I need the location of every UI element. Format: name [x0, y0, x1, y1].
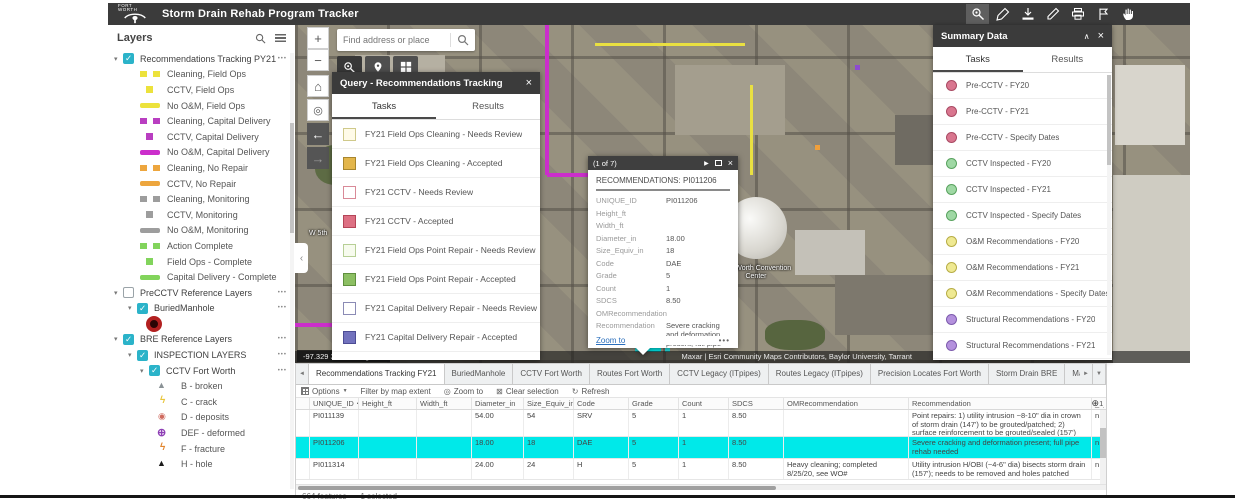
search-submit-icon[interactable] — [451, 34, 475, 46]
layer-item[interactable]: Cleaning, Monitoring — [108, 191, 295, 207]
maximize-icon[interactable] — [715, 160, 722, 166]
table-tab[interactable]: Precision Locates Fort Worth — [871, 364, 989, 384]
column-header[interactable]: Size_Equiv_in — [524, 398, 574, 409]
caret-down-icon[interactable] — [128, 304, 137, 312]
table-tab[interactable]: CCTV Legacy (ITpipes) — [670, 364, 769, 384]
query-task[interactable]: FY21 CCTV - Accepted — [332, 207, 540, 236]
layer-checkbox[interactable] — [137, 303, 148, 314]
layer-item[interactable]: B - broken — [108, 378, 295, 394]
summary-task[interactable]: Structural Recommendations - FY20 — [933, 307, 1112, 333]
layer-menu-icon[interactable] — [278, 56, 287, 62]
layer-label: Cleaning, Capital Delivery — [167, 116, 271, 126]
layer-item[interactable]: CCTV, Capital Delivery — [108, 129, 295, 145]
task-label: FY21 Field Ops Cleaning - Needs Review — [365, 129, 522, 139]
bookmark-tool-button[interactable] — [1091, 4, 1114, 24]
search-icon[interactable] — [255, 33, 266, 44]
cell-recommendation: Severe cracking and deformation present;… — [909, 437, 1092, 458]
summary-panel-header[interactable]: Summary Data ∧ × — [933, 25, 1112, 47]
field-value: 1 — [666, 284, 730, 293]
query-task[interactable]: FY21 Field Ops Cleaning - Needs Review — [332, 120, 540, 149]
tab-tasks[interactable]: Tasks — [933, 47, 1023, 72]
options-grid-icon — [301, 387, 309, 395]
table-tab[interactable]: BuriedManhole — [445, 364, 514, 384]
layer-item[interactable]: No O&M, Capital Delivery — [108, 145, 295, 161]
field-label: Size_Equiv_in — [596, 246, 666, 255]
cell-diameter-in: 54.00 — [472, 410, 524, 436]
field-label: Count — [596, 284, 666, 293]
summary-tabs: Tasks Results — [933, 47, 1112, 73]
cell-size-equiv-in: 24 — [524, 459, 574, 479]
logo-text: FORT WORTH — [118, 4, 152, 12]
cell-width-ft — [417, 410, 472, 436]
layer-item[interactable]: BuriedManhole — [108, 301, 295, 317]
legend-swatch — [140, 209, 160, 220]
column-header[interactable]: Height_ft — [359, 398, 417, 409]
cell-recommendation: Point repairs: 1) utility intrusion ~8-1… — [909, 410, 1092, 436]
next-extent-button[interactable]: → — [307, 147, 329, 169]
layer-label: CCTV Fort Worth — [166, 366, 235, 376]
attribute-table: ◄ Recommendations Tracking FY21 BuriedMa… — [295, 363, 1107, 496]
close-icon[interactable]: × — [1098, 30, 1104, 42]
legend-swatch — [140, 240, 160, 251]
summary-task[interactable]: CCTV Inspected - FY20 — [933, 151, 1112, 177]
field-label: SDCS — [596, 296, 666, 305]
layer-label: PreCCTV Reference Layers — [140, 288, 252, 298]
column-header[interactable]: Code — [574, 398, 629, 409]
query-panel-title: Query - Recommendations Tracking — [340, 78, 503, 89]
query-task[interactable]: FY21 Field Ops Cleaning - Accepted — [332, 149, 540, 178]
popup-fields: UNIQUE_ID PI011206 Height_ft Width_ft — [596, 196, 730, 348]
layers-scrollbar[interactable] — [290, 53, 294, 489]
task-swatch — [946, 158, 957, 169]
layer-label: No O&M, Field Ops — [167, 101, 245, 111]
cell-om-recommendation — [784, 437, 909, 458]
query-task[interactable]: FY21 Capital Delivery Repair - Accepted — [332, 323, 540, 352]
popup-field-row: UNIQUE_ID PI011206 — [596, 196, 730, 205]
layer-item[interactable]: F - fracture — [108, 441, 295, 457]
column-header[interactable]: Grade — [629, 398, 679, 409]
cell-code: H — [574, 459, 629, 479]
task-label: CCTV Inspected - Specify Dates — [966, 211, 1081, 220]
cell-height-ft — [359, 437, 417, 458]
layer-item[interactable]: BRE Reference Layers — [108, 332, 295, 348]
popup-field-row: Count 1 — [596, 284, 730, 293]
storm-drain-line — [545, 25, 549, 175]
column-header[interactable]: Diameter_in — [472, 398, 524, 409]
table-tab[interactable]: CCTV Fort Worth — [513, 364, 590, 384]
pan-tool-button[interactable] — [1116, 4, 1139, 24]
zoom-to-button[interactable]: ◎Zoom to — [444, 387, 483, 396]
previous-extent-button[interactable]: ← — [307, 123, 329, 145]
cell-unique-id: PI011139 — [310, 410, 359, 436]
layer-item[interactable]: Action Complete — [108, 238, 295, 254]
layer-label: No O&M, Capital Delivery — [167, 147, 270, 157]
layer-checkbox[interactable] — [137, 350, 148, 361]
layer-label: INSPECTION LAYERS — [154, 350, 246, 360]
table-tab-bar: ◄ Recommendations Tracking FY21 BuriedMa… — [296, 364, 1106, 385]
map-marker — [855, 65, 860, 70]
task-label: Structural Recommendations - FY21 — [966, 341, 1095, 350]
legend-swatch — [140, 256, 160, 267]
layer-label: D - deposits — [181, 412, 229, 422]
popup-body: RECOMMENDATIONS: PI011206 UNIQUE_ID PI01… — [588, 170, 738, 348]
cell-code: SRV — [574, 410, 629, 436]
task-swatch — [946, 184, 957, 195]
layers-panel-header: Layers — [108, 25, 295, 51]
popup-field-row: Code DAE — [596, 259, 730, 268]
add-data-tool-button[interactable] — [1016, 4, 1039, 24]
layer-checkbox[interactable] — [149, 365, 160, 376]
query-tool-button[interactable] — [966, 4, 989, 24]
layer-menu-icon[interactable] — [278, 368, 287, 374]
task-swatch — [343, 331, 356, 344]
popup-title: RECOMMENDATIONS: PI011206 — [596, 176, 730, 191]
layer-item[interactable]: CCTV Fort Worth — [108, 363, 295, 379]
storm-drain-line — [750, 85, 753, 175]
legend-swatch — [154, 443, 174, 454]
search-input[interactable] — [337, 35, 450, 45]
summary-task[interactable]: O&M Recommendations - FY20 — [933, 229, 1112, 255]
layer-label: B - broken — [181, 381, 223, 391]
options-button[interactable]: Options▼ — [301, 387, 348, 396]
summary-task[interactable]: Structural Recommendations - FY21 — [933, 333, 1112, 359]
column-header[interactable] — [296, 398, 310, 409]
legend-swatch — [144, 316, 164, 332]
query-task[interactable]: FY21 CCTV - Needs Review — [332, 178, 540, 207]
layer-label: CCTV, No Repair — [167, 179, 236, 189]
zoom-out-button[interactable]: − — [307, 49, 329, 71]
column-header[interactable]: UNIQUE_ID▲ — [310, 398, 359, 409]
summary-task[interactable]: Pre-CCTV - FY20 — [933, 73, 1112, 99]
layer-item[interactable]: Capital Delivery - Complete — [108, 269, 295, 285]
layers-panel-title: Layers — [117, 32, 152, 44]
task-swatch — [946, 132, 957, 143]
task-swatch — [343, 273, 356, 286]
collapse-panel-handle[interactable]: ‹ — [295, 243, 308, 273]
layer-menu-icon[interactable] — [278, 290, 287, 296]
table-row[interactable]: PI011206 18.00 18 DAE 5 1 8.50 Severe cr… — [296, 437, 1106, 459]
layer-checkbox[interactable] — [123, 53, 134, 64]
field-value: 18.00 — [666, 234, 730, 243]
table-tab[interactable]: Routes Legacy (ITpipes) — [769, 364, 871, 384]
cell-width-ft — [417, 437, 472, 458]
cell-count: 1 — [679, 459, 729, 479]
caret-down-icon[interactable] — [114, 55, 123, 63]
query-panel: Query - Recommendations Tracking × Tasks… — [332, 72, 540, 360]
field-label: UNIQUE_ID — [596, 196, 666, 205]
layer-label: No O&M, Monitoring — [167, 225, 249, 235]
layer-item[interactable] — [108, 316, 295, 332]
app-title: Storm Drain Rehab Program Tracker — [162, 8, 359, 20]
cell-unique-id: PI011206 — [310, 437, 359, 458]
popup-field-row: Height_ft — [596, 209, 730, 218]
summary-task-list: Pre-CCTV - FY20 Pre-CCTV - FY21 Pre-CCTV… — [933, 73, 1112, 359]
layer-checkbox[interactable] — [123, 334, 134, 345]
print-tool-button[interactable] — [1066, 4, 1089, 24]
layer-label: H - hole — [181, 459, 213, 469]
field-value: 8.50 — [666, 296, 730, 305]
query-task-list: FY21 Field Ops Cleaning - Needs Review F… — [332, 120, 540, 352]
task-swatch — [946, 80, 957, 91]
cell-om-recommendation — [784, 410, 909, 436]
longhorn-icon — [122, 12, 148, 24]
popup-field-row: SDCS 8.50 — [596, 296, 730, 305]
field-value: 18 — [666, 246, 730, 255]
layer-label: C - crack — [181, 397, 217, 407]
layer-label: Field Ops - Complete — [167, 257, 252, 267]
table-row[interactable]: PI011314 24.00 24 H 5 1 8.50 Heavy clean… — [296, 459, 1106, 480]
summary-task[interactable]: O&M Recommendations - Specify Dates — [933, 281, 1112, 307]
legend-swatch — [140, 194, 160, 205]
tab-results[interactable]: Results — [436, 94, 540, 119]
query-task[interactable]: FY21 Field Ops Point Repair - Needs Revi… — [332, 236, 540, 265]
legend-swatch — [154, 412, 174, 423]
header-toolbar — [966, 3, 1139, 25]
layer-item[interactable]: INSPECTION LAYERS — [108, 347, 295, 363]
layer-item[interactable]: Recommendations Tracking PY21 — [108, 51, 295, 67]
layer-label: CCTV, Monitoring — [167, 210, 238, 220]
layer-item[interactable]: PreCCTV Reference Layers — [108, 285, 295, 301]
layer-label: Action Complete — [167, 241, 233, 251]
legend-swatch — [140, 100, 160, 111]
tabs-menu-icon[interactable]: ▼ — [1093, 364, 1106, 384]
cell-om-recommendation: Heavy cleaning; completed 8/25/20, see W… — [784, 459, 909, 479]
table-tab[interactable]: Recommendations Tracking FY21 — [309, 364, 445, 384]
field-label: Diameter_in — [596, 234, 666, 243]
cell-size-equiv-in: 18 — [524, 437, 574, 458]
caret-down-icon[interactable] — [128, 351, 137, 359]
field-value — [667, 309, 730, 318]
query-panel-header[interactable]: Query - Recommendations Tracking × — [332, 72, 540, 94]
clear-selection-button[interactable]: ⊠Clear selection — [496, 387, 559, 396]
home-button[interactable]: ⌂ — [307, 75, 329, 97]
tabs-scroll-left-icon[interactable]: ◄ — [296, 364, 309, 384]
task-label: FY21 Field Ops Cleaning - Accepted — [365, 158, 503, 168]
field-value: 5 — [666, 271, 730, 280]
task-swatch — [946, 106, 957, 117]
task-swatch — [343, 244, 356, 257]
task-swatch — [343, 157, 356, 170]
task-swatch — [343, 128, 356, 141]
layer-item[interactable]: C - crack — [108, 394, 295, 410]
caret-down-icon[interactable] — [140, 367, 149, 375]
query-task[interactable]: FY21 Capital Delivery Repair - Needs Rev… — [332, 294, 540, 323]
draw-tool-button[interactable] — [991, 4, 1014, 24]
task-label: Pre-CCTV - FY20 — [966, 81, 1029, 90]
tabs-scroll-right-icon[interactable]: ► — [1080, 364, 1093, 384]
summary-task[interactable]: Pre-CCTV - FY21 — [933, 99, 1112, 125]
table-toolbar: Options▼ Filter by map extent ◎Zoom to ⊠… — [296, 385, 1106, 398]
fort-worth-logo: FORT WORTH — [118, 4, 152, 24]
layer-checkbox[interactable] — [123, 287, 134, 298]
task-label: FY21 CCTV - Needs Review — [365, 187, 473, 197]
layer-label: BuriedManhole — [154, 303, 215, 313]
task-swatch — [343, 302, 356, 315]
field-settings-icon[interactable]: ⊕ — [1091, 398, 1099, 409]
cell-height-ft — [359, 410, 417, 436]
popup-header[interactable]: (1 of 7) ▶ × — [588, 156, 738, 170]
legend-swatch — [140, 147, 160, 158]
task-swatch — [946, 210, 957, 221]
storm-drain-line — [595, 43, 745, 46]
layer-menu-icon[interactable] — [278, 336, 287, 342]
legend-swatch — [154, 428, 174, 439]
popup-pointer — [636, 348, 650, 362]
table-vertical-scrollbar[interactable] — [1100, 410, 1106, 484]
cell-code: DAE — [574, 437, 629, 458]
layer-item[interactable]: No O&M, Monitoring — [108, 223, 295, 239]
cell-count: 1 — [679, 437, 729, 458]
table-horizontal-scrollbar[interactable] — [296, 484, 1106, 490]
task-label: FY21 Capital Delivery Repair - Accepted — [365, 332, 517, 342]
layer-label: CCTV, Field Ops — [167, 85, 234, 95]
tab-tasks[interactable]: Tasks — [332, 94, 436, 119]
field-value — [666, 221, 730, 230]
legend-swatch — [154, 381, 174, 392]
task-label: Structural Recommendations - FY20 — [966, 315, 1095, 324]
legend-swatch — [140, 178, 160, 189]
legend-swatch — [140, 69, 160, 80]
map-trees — [765, 320, 825, 350]
task-swatch — [946, 314, 957, 325]
summary-task[interactable]: Pre-CCTV - Specify Dates — [933, 125, 1112, 151]
zoom-to-link[interactable]: Zoom to — [596, 336, 625, 345]
legend-swatch — [140, 162, 160, 173]
caret-down-icon[interactable] — [114, 335, 123, 343]
column-header[interactable]: OMRecommendation — [784, 398, 909, 409]
layer-item[interactable]: Cleaning, No Repair — [108, 160, 295, 176]
legend-swatch — [154, 459, 174, 470]
task-swatch — [946, 236, 957, 247]
layer-item[interactable]: CCTV, Monitoring — [108, 207, 295, 223]
layer-label: BRE Reference Layers — [140, 334, 232, 344]
task-label: Pre-CCTV - FY21 — [966, 107, 1029, 116]
locate-button[interactable]: ◎ — [307, 99, 329, 121]
task-swatch — [343, 186, 356, 199]
popup-field-row: Diameter_in 18.00 — [596, 234, 730, 243]
cell-grade: 5 — [629, 437, 679, 458]
legend-swatch — [154, 396, 174, 407]
summary-task[interactable]: CCTV Inspected - Specify Dates — [933, 203, 1112, 229]
cell-diameter-in: 24.00 — [472, 459, 524, 479]
table-header-row: ⊕ UNIQUE_ID▲ Height_ft Width_ft Diameter… — [296, 398, 1106, 410]
next-feature-icon[interactable]: ▶ — [704, 160, 709, 167]
legend-swatch — [140, 131, 160, 142]
task-label: FY21 Field Ops Point Repair - Needs Revi… — [365, 245, 536, 255]
task-label: FY21 CCTV - Accepted — [365, 216, 453, 226]
task-label: O&M Recommendations - FY21 — [966, 263, 1079, 272]
cell-sdcs: 8.50 — [729, 437, 784, 458]
summary-task[interactable]: O&M Recommendations - FY21 — [933, 255, 1112, 281]
column-header[interactable]: Width_ft — [417, 398, 472, 409]
table-tab[interactable]: Routes Fort Worth — [590, 364, 670, 384]
collapse-icon[interactable]: ∧ — [1084, 32, 1090, 41]
edit-tool-button[interactable] — [1041, 4, 1064, 24]
refresh-button[interactable]: ↻Refresh — [572, 387, 610, 396]
popup-counter: (1 of 7) — [593, 159, 617, 168]
target-icon: ◎ — [444, 387, 451, 396]
layer-label: Cleaning, Monitoring — [167, 194, 250, 204]
layer-item[interactable]: Cleaning, Field Ops — [108, 67, 295, 83]
task-swatch — [946, 262, 957, 273]
zoom-in-button[interactable]: + — [307, 27, 329, 49]
layer-menu-icon[interactable] — [278, 352, 287, 358]
field-label: Width_ft — [596, 221, 666, 230]
cell-unique-id: PI011314 — [310, 459, 359, 479]
summary-scrollbar[interactable] — [1107, 75, 1111, 355]
layer-item[interactable]: H - hole — [108, 456, 295, 472]
more-options-icon[interactable]: ••• — [719, 336, 730, 345]
table-tab[interactable]: Storm Drain BRE — [989, 364, 1065, 384]
layer-label: DEF - deformed — [181, 428, 245, 438]
caret-down-icon[interactable] — [114, 289, 123, 297]
task-label: CCTV Inspected - FY21 — [966, 185, 1051, 194]
layer-item[interactable]: Cleaning, Capital Delivery — [108, 113, 295, 129]
layer-item[interactable]: DEF - deformed — [108, 425, 295, 441]
close-icon[interactable]: × — [526, 77, 532, 89]
popup-field-row: Size_Equiv_in 18 — [596, 246, 730, 255]
legend-swatch — [140, 272, 160, 283]
task-label: Pre-CCTV - Specify Dates — [966, 133, 1059, 142]
search-box — [337, 29, 475, 51]
task-label: CCTV Inspected - FY20 — [966, 159, 1051, 168]
app-canvas: FORT WORTH Storm Drain Rehab Program Tra… — [0, 0, 1235, 500]
column-header[interactable]: SDCS — [729, 398, 784, 409]
cell-sdcs: 8.50 — [729, 459, 784, 479]
summary-panel: Summary Data ∧ × Tasks Results Pre-CCTV … — [933, 25, 1112, 360]
layer-item[interactable]: Field Ops - Complete — [108, 254, 295, 270]
layer-item[interactable]: No O&M, Field Ops — [108, 98, 295, 114]
layer-label: F - fracture — [181, 444, 225, 454]
column-header[interactable]: Recommendation — [909, 398, 1092, 409]
task-label: O&M Recommendations - Specify Dates — [966, 289, 1110, 298]
layer-item[interactable]: CCTV, No Repair — [108, 176, 295, 192]
layer-item[interactable]: D - deposits — [108, 410, 295, 426]
bottom-border — [0, 495, 1235, 498]
summary-task[interactable]: CCTV Inspected - FY21 — [933, 177, 1112, 203]
task-swatch — [946, 288, 957, 299]
filter-by-extent-button[interactable]: Filter by map extent — [361, 387, 431, 396]
layer-list-options-icon[interactable] — [275, 34, 286, 42]
query-task[interactable]: FY21 Field Ops Point Repair - Accepted — [332, 265, 540, 294]
table-tab[interactable]: Mapshed BRE — [1065, 364, 1080, 384]
layers-list: Recommendations Tracking PY21 Cleaning, … — [108, 51, 295, 472]
layer-menu-icon[interactable] — [278, 305, 287, 311]
field-value: DAE — [666, 259, 730, 268]
cell-size-equiv-in: 54 — [524, 410, 574, 436]
layer-label: CCTV, Capital Delivery — [167, 132, 259, 142]
legend-swatch — [140, 84, 160, 95]
layer-label: Recommendations Tracking PY21 — [140, 54, 276, 64]
layer-label: Cleaning, No Repair — [167, 163, 248, 173]
tab-results[interactable]: Results — [1023, 47, 1113, 72]
map-parking — [795, 230, 865, 275]
layer-item[interactable]: CCTV, Field Ops — [108, 82, 295, 98]
task-swatch — [946, 340, 957, 351]
summary-panel-title: Summary Data — [941, 31, 1008, 42]
field-value — [666, 209, 730, 218]
cell-grade: 5 — [629, 410, 679, 436]
close-icon[interactable]: × — [728, 159, 733, 168]
layer-label: Cleaning, Field Ops — [167, 69, 246, 79]
clear-icon: ⊠ — [496, 387, 503, 396]
table-row[interactable]: PI011139 54.00 54 SRV 5 1 8.50 Point rep… — [296, 410, 1106, 437]
field-label: Height_ft — [596, 209, 666, 218]
column-header[interactable]: Count — [679, 398, 729, 409]
cell-recommendation: Utility intrusion H/OBI (~4-6" dia) bise… — [909, 459, 1092, 479]
task-label: FY21 Capital Delivery Repair - Needs Rev… — [365, 303, 537, 313]
task-label: FY21 Field Ops Point Repair - Accepted — [365, 274, 516, 284]
